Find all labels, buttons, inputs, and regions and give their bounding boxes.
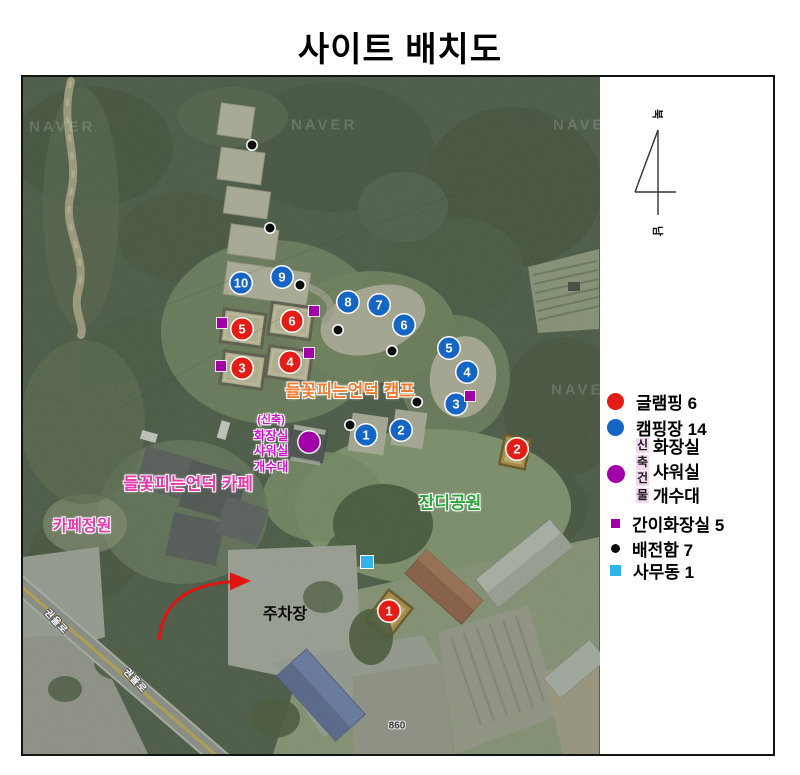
glamping-marker-6: 6: [282, 311, 303, 332]
new-building-vertical-char: 신: [636, 438, 649, 453]
road-name-label: 권율로: [121, 665, 151, 696]
watermark: NAVER: [29, 119, 95, 136]
power-box-marker-1: [248, 141, 257, 150]
office-swatch-icon: [610, 565, 621, 576]
camping-swatch-icon: [607, 419, 624, 436]
glamping-marker-3: 3: [232, 358, 253, 379]
glamping-marker-5: 5: [232, 319, 253, 340]
camping-marker-9: 9: [272, 267, 293, 288]
map-frame: 12345678910123456들꽃피는언덕 캠프들꽃피는언덕 카페카페정원잔…: [21, 75, 775, 756]
legend-item-power-box: 배전함 7: [603, 536, 693, 560]
portable-toilet-marker-2: [309, 306, 319, 316]
camping-marker-6: 6: [394, 315, 415, 336]
map-overlay: 12345678910123456들꽃피는언덕 캠프들꽃피는언덕 카페카페정원잔…: [23, 77, 600, 754]
glamping-swatch-icon: [607, 393, 624, 410]
camping-marker-10: 10: [231, 273, 252, 294]
new-building-vertical-char: 물: [636, 488, 649, 503]
cafe-name-label: 들꽃피는언덕 카페: [123, 470, 253, 495]
parking-label: 주차장: [263, 600, 307, 624]
legend-item-portable-toilet: 간이화장실 5: [603, 511, 724, 535]
power-box-marker-3: [296, 281, 305, 290]
page-title: 사이트 배치도: [0, 22, 800, 71]
portable-toilet-swatch-icon: [611, 519, 620, 528]
new-building-facility-list: 화장실 샤워실 개수대: [653, 436, 700, 510]
power-box-marker-2: [266, 224, 275, 233]
new-building-note-line: (신축): [254, 413, 289, 429]
new-building-note-line: 샤워실: [254, 444, 289, 460]
camping-marker-8: 8: [338, 292, 359, 313]
camping-marker-3: 3: [446, 394, 467, 415]
new-building-vertical-char: 축: [636, 455, 649, 470]
camping-marker-2: 2: [391, 420, 412, 441]
watermark: NAVER: [291, 382, 357, 399]
compass-north-label: 북: [650, 106, 666, 122]
watermark: NAVER: [291, 117, 357, 134]
camping-marker-4: 4: [457, 362, 478, 383]
legend-item-glamping: 글램핑 6: [603, 389, 697, 413]
glamping-marker-4: 4: [280, 352, 301, 373]
compass: 북 남: [633, 102, 693, 247]
watermark: NAVER: [553, 117, 600, 134]
road-name-label: 권율로: [42, 606, 72, 637]
lot-number-label: 860: [389, 721, 406, 732]
new-building-swatch-icon: [607, 465, 625, 483]
camping-marker-1: 1: [356, 425, 377, 446]
lawn-park-label: 잔디공원: [419, 489, 482, 514]
new-building-note-line: 화장실: [254, 429, 289, 445]
power-box-marker-4: [334, 326, 343, 335]
portable-toilet-marker-1: [217, 318, 227, 328]
power-box-swatch-icon: [611, 544, 620, 553]
watermark: NAVER: [551, 382, 600, 399]
camping-marker-5: 5: [439, 338, 460, 359]
glamping-marker-1: 1: [379, 601, 400, 622]
portable-toilet-marker-5: [465, 391, 475, 401]
legend-item-office: 사무동 1: [603, 558, 694, 582]
power-box-marker-7: [346, 421, 355, 430]
legend-item-new-building: 신축건물 화장실 샤워실 개수대: [603, 438, 773, 514]
glamping-marker-2: 2: [507, 439, 528, 460]
portable-toilet-marker-4: [304, 348, 314, 358]
new-building-note: (신축)화장실샤워실개수대: [254, 413, 289, 475]
compass-south-label: 남: [650, 223, 666, 239]
satellite-map: 12345678910123456들꽃피는언덕 캠프들꽃피는언덕 카페카페정원잔…: [23, 77, 600, 754]
site-layout-page: 사이트 배치도: [0, 0, 800, 775]
office-marker: [360, 555, 374, 569]
new-building-note-line: 개수대: [254, 460, 289, 476]
new-building-vertical-label: 신축건물: [636, 438, 649, 504]
new-building-vertical-char: 건: [636, 471, 649, 486]
cafe-garden-label: 카페정원: [53, 512, 112, 536]
new-building-marker: [299, 432, 320, 453]
camping-marker-7: 7: [369, 295, 390, 316]
power-box-marker-5: [388, 347, 397, 356]
portable-toilet-marker-3: [216, 361, 226, 371]
